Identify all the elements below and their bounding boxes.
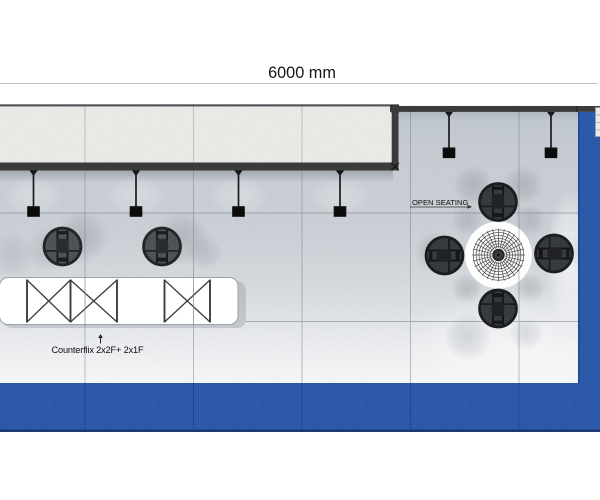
svg-text:6000 mm: 6000 mm [268, 64, 336, 82]
svg-text:OPEN SEATING: OPEN SEATING [412, 198, 468, 207]
svg-text:Counterflix 2x2F+ 2x1F: Counterflix 2x2F+ 2x1F [52, 345, 144, 355]
